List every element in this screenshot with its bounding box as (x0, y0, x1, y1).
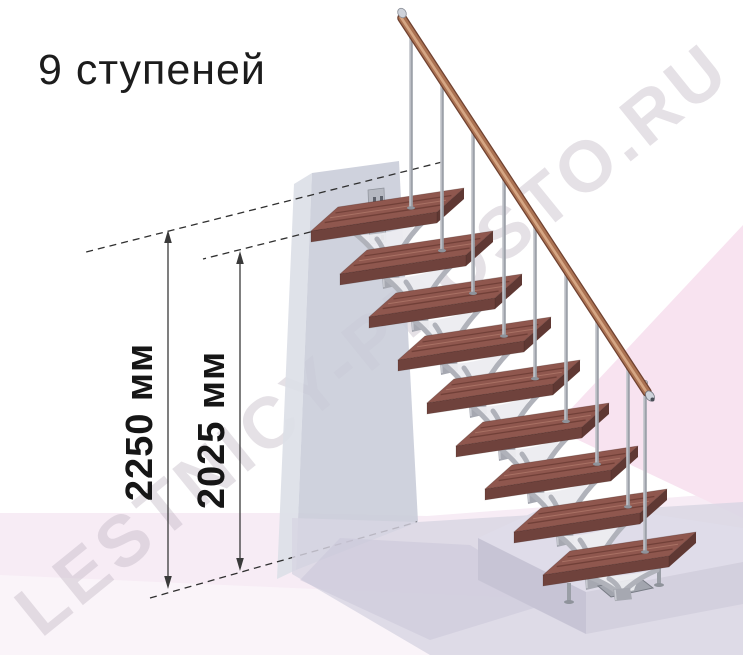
baluster-base (531, 377, 539, 380)
page-title: 9 ступеней (38, 46, 266, 94)
staircase-diagram-figure: LESTNICY-PROSTO.RU 2250 мм 2025 мм 9 сту… (0, 0, 743, 655)
baluster-base (593, 462, 601, 465)
baluster-base (438, 249, 446, 252)
baluster-base (624, 505, 632, 508)
leg-foot (564, 600, 574, 604)
dimension-label-to-top-step: 2025 мм (191, 351, 233, 509)
handrail-end-cap-tip (651, 398, 655, 402)
baluster-base (407, 206, 415, 209)
baluster-base (500, 334, 508, 337)
baluster-base (562, 420, 570, 423)
dimension-label-total-height: 2250 мм (119, 343, 161, 501)
baluster-base (469, 292, 477, 295)
baluster-base (641, 550, 649, 553)
staircase-diagram: LESTNICY-PROSTO.RU 2250 мм 2025 мм 9 сту… (0, 0, 743, 655)
leg-foot (654, 583, 664, 587)
spine-highlight (615, 590, 616, 600)
